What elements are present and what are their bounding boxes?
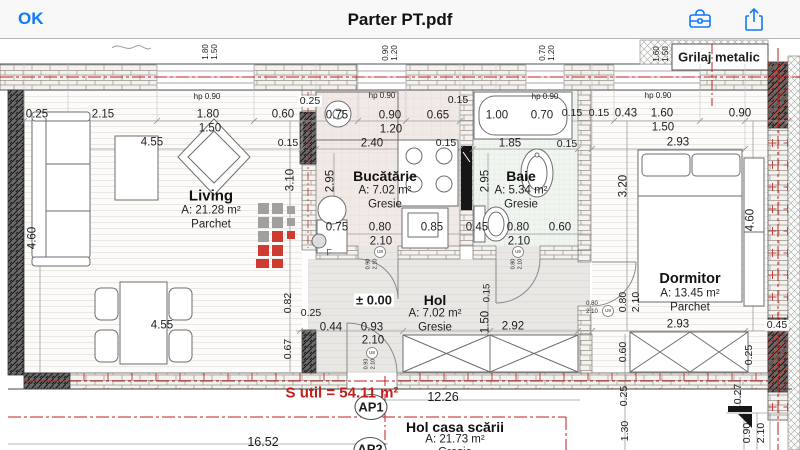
dim-label: 1.50 bbox=[652, 122, 674, 134]
dim-label: 0.25 bbox=[744, 345, 755, 365]
room-living-area: A: 21.28 m² bbox=[181, 205, 240, 217]
document-title: Parter PT.pdf bbox=[0, 10, 800, 30]
s-util-label: S util = 54.11 m² bbox=[286, 386, 399, 401]
share-button[interactable] bbox=[738, 5, 770, 33]
room-bucatarie-name: Bucătărie bbox=[353, 169, 417, 183]
dim-label: U8 bbox=[377, 250, 383, 255]
dim-label: 2.95 bbox=[480, 170, 492, 192]
dim-label: 1.60 bbox=[651, 108, 673, 120]
toolbar: OK Parter PT.pdf bbox=[0, 0, 800, 39]
dim-label: 4.60 bbox=[745, 209, 757, 231]
dim-label: 0.75 bbox=[326, 110, 348, 122]
dim-label: 0.80 bbox=[586, 301, 598, 307]
dim-label: U9 bbox=[515, 250, 521, 255]
dim-label: 2.92 bbox=[502, 321, 524, 333]
dim-label: 4.55 bbox=[151, 320, 173, 332]
dim-label: hp 0.90 bbox=[532, 93, 559, 101]
dim-label: 2.10 bbox=[756, 423, 767, 443]
dim-label: 2.10 bbox=[373, 259, 379, 270]
dim-label: 0.15 bbox=[448, 95, 468, 106]
room-dormitor-area: A: 13.45 m² bbox=[660, 288, 719, 300]
dim-label: 0.60 bbox=[618, 342, 629, 362]
room-hol-floor: Gresie bbox=[418, 322, 452, 334]
dim-label: 0.15 bbox=[589, 108, 609, 119]
dim-label: 0.15 bbox=[557, 139, 577, 150]
dim-label: 16.52 bbox=[247, 436, 278, 449]
dim-label: 3.10 bbox=[285, 169, 297, 191]
floor-plan-drawing bbox=[0, 38, 800, 450]
dim-label: 1.50 bbox=[662, 46, 670, 62]
dim-label: 2.10 bbox=[362, 335, 384, 347]
dim-label: hp 0.90 bbox=[645, 92, 672, 100]
dim-label: 2.10 bbox=[518, 259, 524, 270]
dim-label: 0.82 bbox=[283, 293, 294, 313]
dim-label: 1.60 bbox=[653, 46, 661, 62]
room-bucatarie-area: A: 7.02 m² bbox=[358, 185, 411, 197]
dim-label: 2.10 bbox=[586, 309, 598, 315]
dim-label: 0.15 bbox=[482, 284, 492, 303]
dim-label: 2.10 bbox=[631, 292, 642, 312]
dim-label: F bbox=[326, 249, 332, 258]
dim-label: 2.93 bbox=[667, 137, 689, 149]
dim-label: 0.15 bbox=[278, 138, 298, 149]
dim-label: 1.00 bbox=[486, 110, 508, 122]
dim-label: 2.95 bbox=[325, 170, 337, 192]
dim-label: 0.90 bbox=[742, 423, 753, 443]
dim-label: 1.80 bbox=[202, 44, 210, 60]
dim-label: 0.90 bbox=[379, 110, 401, 122]
dim-label: 0.80 bbox=[618, 292, 629, 312]
grilaj-metalic-label: Grilaj metalic bbox=[678, 51, 760, 64]
dim-label: 0.60 bbox=[272, 109, 294, 121]
dim-label: 2.93 bbox=[667, 319, 689, 331]
toolbox-icon bbox=[684, 7, 716, 31]
dim-label: 2.10 bbox=[370, 236, 392, 248]
dim-label: 2.10 bbox=[371, 359, 377, 370]
dim-label: 2.10 bbox=[508, 236, 530, 248]
dim-label: hp 0.90 bbox=[194, 93, 221, 101]
floor-plan[interactable]: 1.801.500.901.200.701.201.601.50Grilaj m… bbox=[0, 38, 800, 450]
dim-label: 3.20 bbox=[618, 175, 630, 197]
dim-label: 0.93 bbox=[364, 359, 370, 370]
dim-label: 1.30 bbox=[620, 421, 631, 441]
dim-label: 4.55 bbox=[141, 137, 163, 149]
dim-label: 1.50 bbox=[211, 44, 219, 60]
dim-label: 0.27 bbox=[733, 384, 744, 404]
dim-label: 0.90 bbox=[729, 108, 751, 120]
level-marker: ± 0.00 bbox=[354, 294, 394, 307]
dim-label: 1.85 bbox=[499, 138, 521, 150]
room-hol-name: Hol bbox=[424, 293, 447, 307]
dim-label: 0.45 bbox=[765, 320, 789, 331]
dim-label: 0.25 bbox=[301, 308, 321, 319]
ap2-label: AP2 bbox=[357, 443, 382, 450]
dim-label: 0.75 bbox=[326, 222, 348, 234]
room-baie-area: A: 5.34 m² bbox=[494, 185, 547, 197]
room-baie-name: Baie bbox=[506, 169, 536, 183]
dim-label: U8 bbox=[369, 351, 375, 356]
dim-label: 1.50 bbox=[480, 311, 492, 333]
dim-label: 12.26 bbox=[427, 391, 458, 404]
dim-label: 4.60 bbox=[27, 227, 39, 249]
room-baie-floor: Gresie bbox=[504, 199, 538, 211]
dim-label: 0.15 bbox=[562, 108, 582, 119]
dim-label: 0.93 bbox=[361, 322, 383, 334]
dim-label: 1.20 bbox=[391, 45, 399, 61]
dim-label: 2.15 bbox=[92, 109, 114, 121]
dim-label: hp 0.90 bbox=[369, 92, 396, 100]
dim-label: 0.70 bbox=[539, 45, 547, 61]
dim-label: 0.90 bbox=[366, 259, 372, 270]
room-hol-casa-scarii-name: Hol casa scării bbox=[406, 420, 504, 434]
dim-label: 0.85 bbox=[421, 222, 443, 234]
room-dormitor-floor: Parchet bbox=[670, 302, 710, 314]
dim-label: 0.25 bbox=[26, 109, 48, 121]
dim-label: 0.43 bbox=[615, 108, 637, 120]
dim-label: 1.20 bbox=[380, 124, 402, 136]
toolbox-button[interactable] bbox=[684, 5, 716, 33]
dim-label: 0.15 bbox=[436, 138, 456, 149]
dim-label: 0.60 bbox=[549, 222, 571, 234]
dim-label: 1.20 bbox=[548, 45, 556, 61]
dim-label: 0.25 bbox=[298, 96, 322, 107]
room-bucatarie-floor: Gresie bbox=[368, 199, 402, 211]
room-living-floor: Parchet bbox=[191, 219, 231, 231]
dim-label: 0.67 bbox=[283, 339, 294, 359]
dim-label: 1.80 bbox=[197, 109, 219, 121]
room-dormitor-name: Dormitor bbox=[659, 272, 720, 287]
ap1-label: AP1 bbox=[358, 401, 383, 414]
ok-button[interactable]: OK bbox=[18, 9, 44, 29]
room-living-name: Living bbox=[189, 189, 233, 204]
dim-label: 0.45 bbox=[466, 222, 488, 234]
dim-label: 2.40 bbox=[361, 138, 383, 150]
dim-label: 0.44 bbox=[320, 322, 342, 334]
dim-label: U9 bbox=[605, 309, 611, 314]
dim-label: 0.90 bbox=[382, 45, 390, 61]
dim-label: 0.25 bbox=[619, 386, 630, 406]
dim-label: 1.50 bbox=[199, 123, 221, 135]
dim-label: 0.80 bbox=[507, 222, 529, 234]
dim-label: 0.65 bbox=[427, 110, 449, 122]
dim-label: 0.70 bbox=[531, 110, 553, 122]
dim-label: 0.80 bbox=[369, 222, 391, 234]
dim-label: 0.80 bbox=[511, 259, 517, 270]
share-icon bbox=[738, 7, 770, 33]
room-hol-casa-scarii-area: A: 21.73 m² bbox=[425, 434, 484, 446]
room-hol-area: A: 7.02 m² bbox=[408, 308, 461, 320]
